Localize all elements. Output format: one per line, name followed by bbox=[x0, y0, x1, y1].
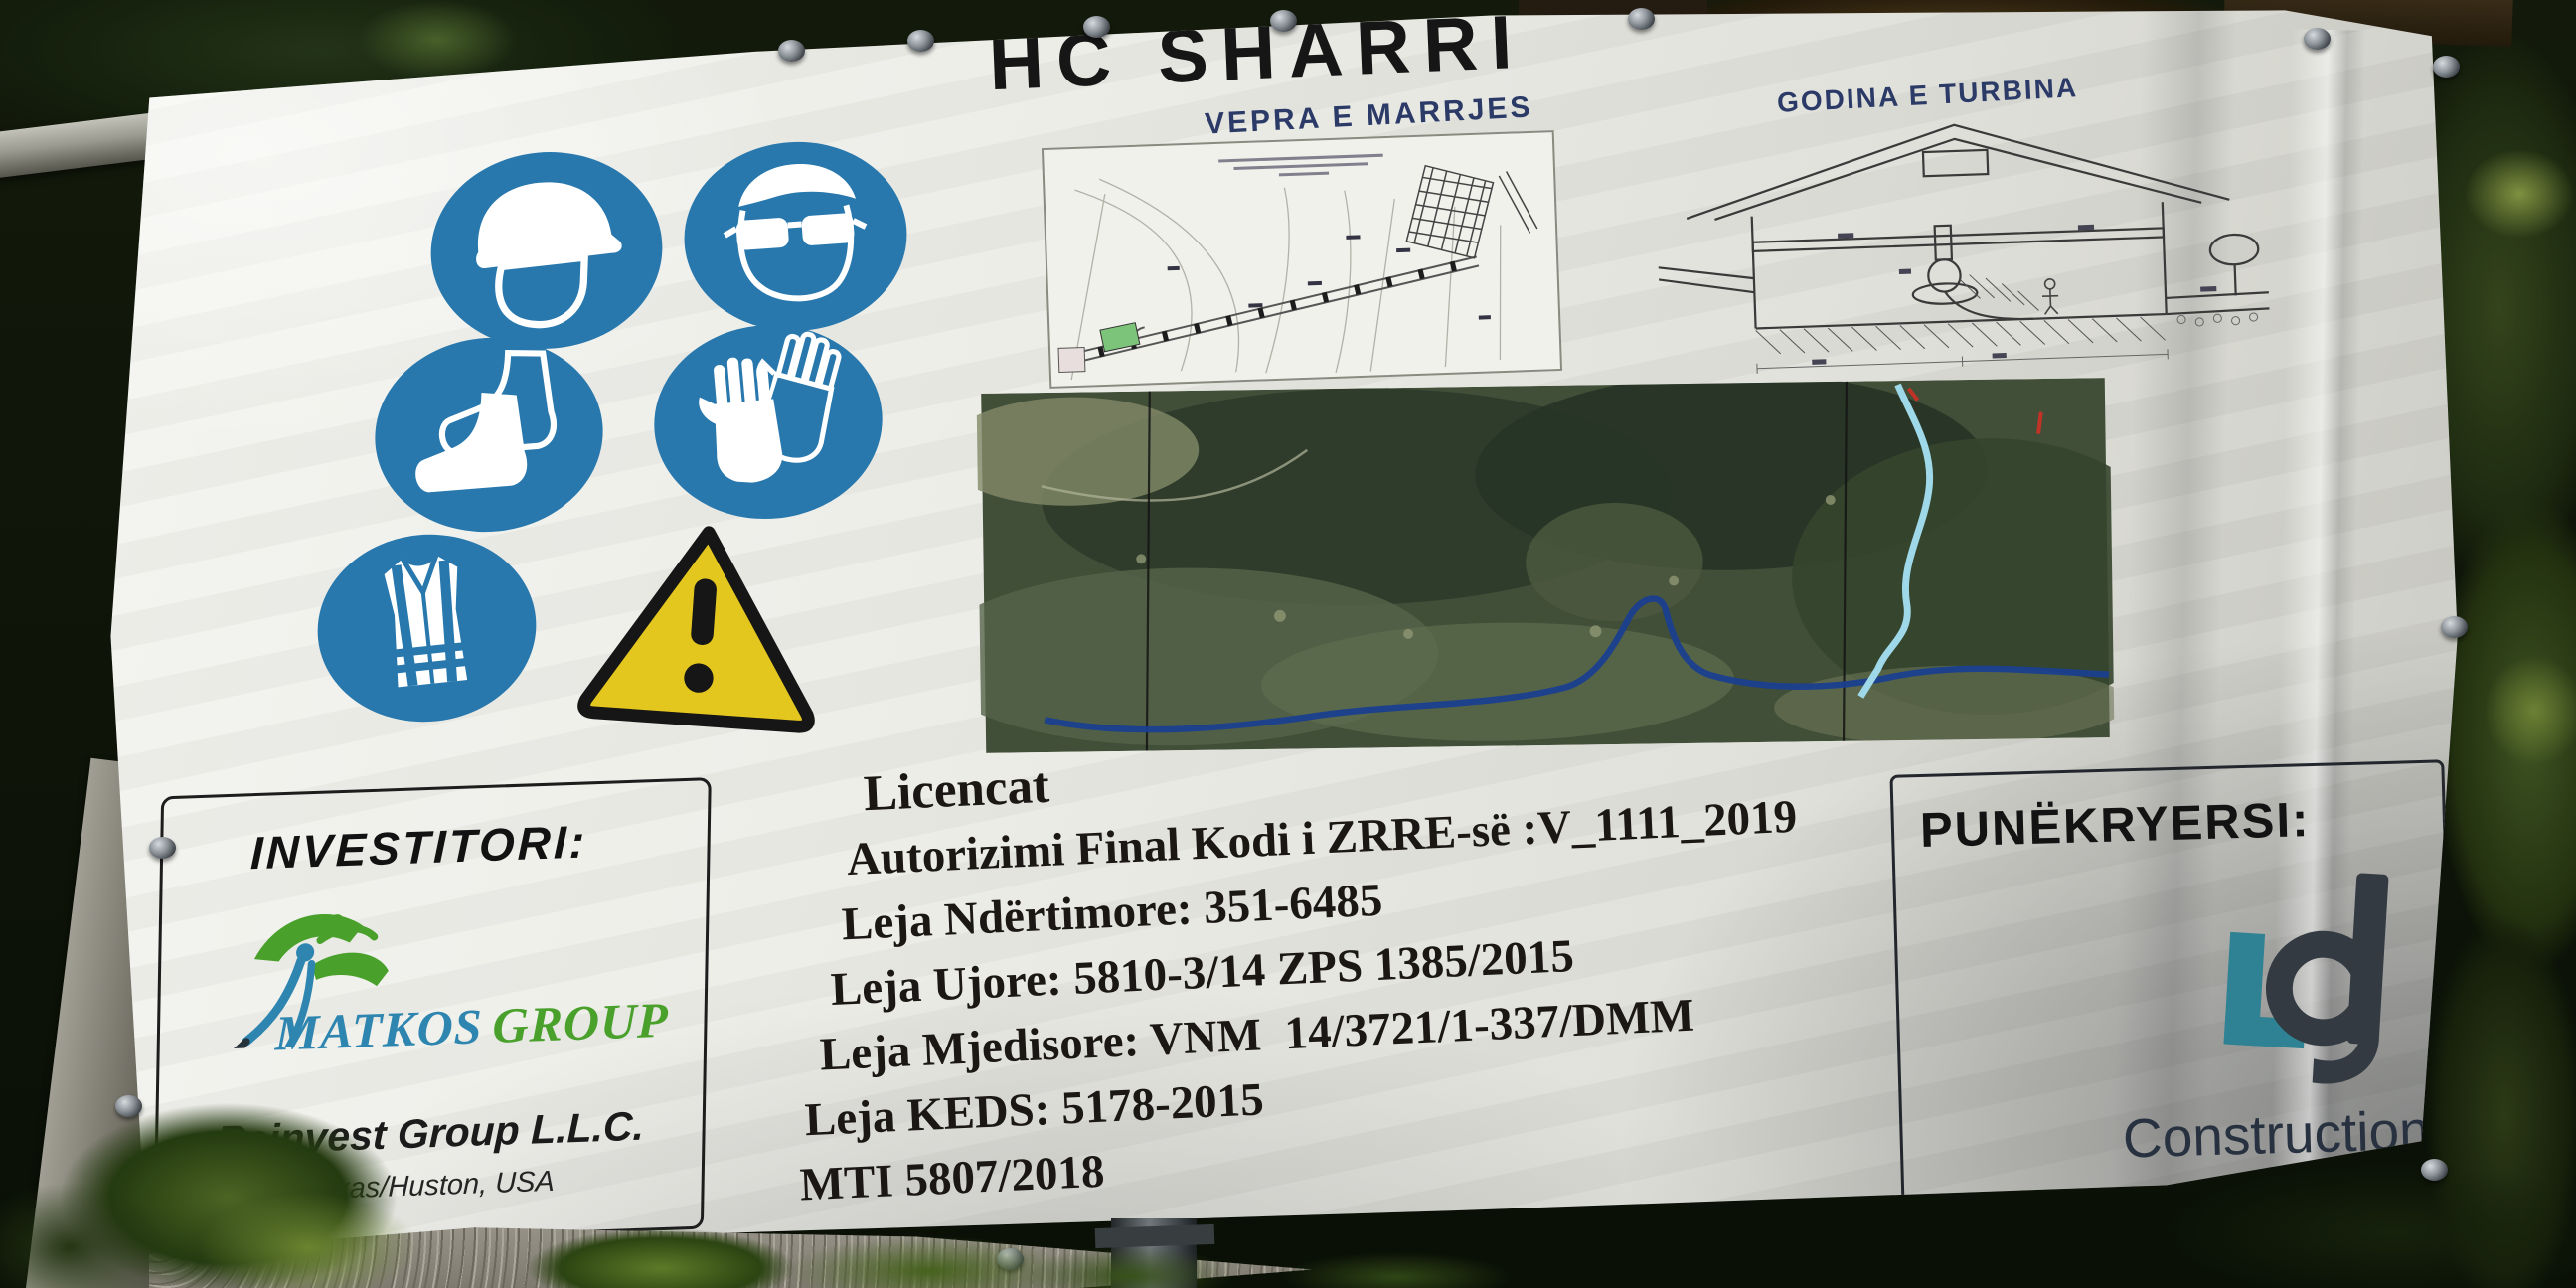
tree-foliage bbox=[358, 0, 517, 80]
site-aerial-map bbox=[977, 378, 2115, 753]
matkos-word-green: GROUP bbox=[492, 992, 669, 1053]
bolt bbox=[2421, 1159, 2448, 1181]
protective-gloves-icon bbox=[636, 309, 901, 534]
turbine-building-drawing bbox=[1653, 96, 2273, 391]
tree-foliage bbox=[2167, 1163, 2576, 1288]
bolt bbox=[1083, 16, 1110, 38]
tree-foliage bbox=[2485, 656, 2576, 765]
intake-drawing bbox=[1042, 130, 1562, 389]
tree-foliage bbox=[2465, 149, 2574, 239]
licenses-block: Licencat Autorizimi Final Kodi i ZRRE-së… bbox=[781, 727, 1814, 1225]
investor-heading: INVESTITORI: bbox=[250, 814, 588, 880]
bolt bbox=[778, 40, 805, 62]
banner: HC SHARRI VEPRA E MARRJES GODINA E TURBI… bbox=[0, 0, 2576, 1288]
bolt bbox=[2433, 56, 2460, 78]
bolt bbox=[907, 30, 934, 52]
sign-title: HC SHARRI bbox=[987, 0, 1526, 107]
matkos-word-blue: MATKOS bbox=[274, 998, 483, 1060]
billboard-photo-scene: HC SHARRI VEPRA E MARRJES GODINA E TURBI… bbox=[0, 0, 2576, 1288]
plant-foliage bbox=[1282, 1252, 1511, 1288]
bolt bbox=[149, 837, 176, 859]
safety-vest-icon bbox=[300, 517, 554, 738]
contractor-company-line1: Construction bbox=[2122, 1099, 2430, 1170]
lg-logo-icon bbox=[2185, 840, 2429, 1106]
eye-protection-icon bbox=[667, 129, 923, 345]
warning-triangle-icon bbox=[564, 500, 840, 741]
bolt bbox=[2441, 616, 2468, 638]
matkos-wordmark: MATKOSGROUP bbox=[274, 991, 669, 1062]
bolt bbox=[1628, 8, 1655, 30]
wood-beam-top bbox=[1519, 0, 1707, 16]
bolt bbox=[2304, 28, 2331, 50]
bolt bbox=[1270, 10, 1297, 32]
bolt bbox=[115, 1095, 142, 1117]
pole-clamp bbox=[1095, 1224, 1215, 1248]
